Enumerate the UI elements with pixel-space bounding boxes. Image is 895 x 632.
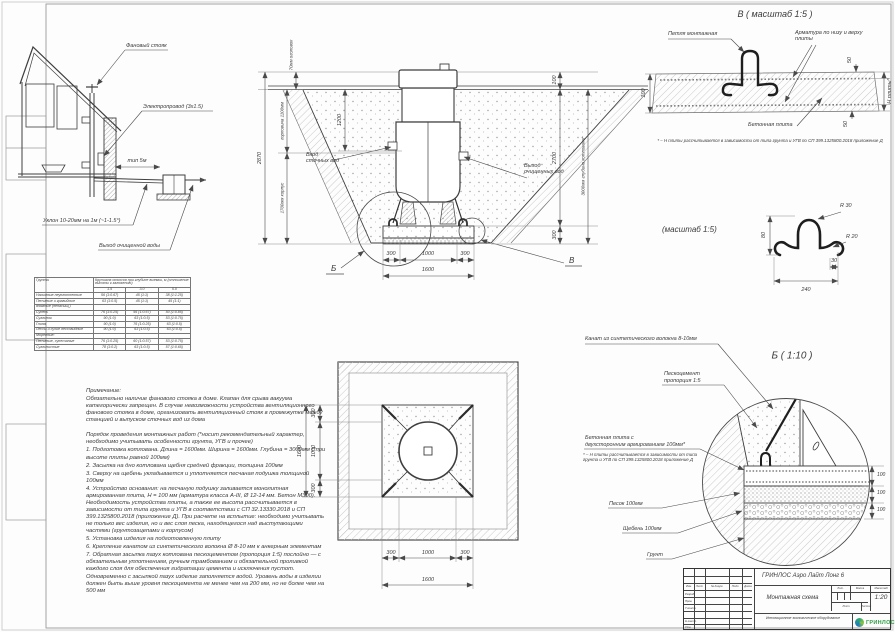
- detail-mark-v: В: [569, 256, 574, 265]
- tb-tagline: Инновационное экологическое оборудование: [755, 616, 851, 620]
- detail-v-rebar-label: Арматура по низу и верху плиты: [795, 30, 870, 43]
- dim-pit-depth: 3000мм глубина котлована*: [580, 136, 585, 195]
- tb-col-izm: Изм.: [684, 584, 694, 588]
- plan-dim-300-b2: 300: [460, 550, 469, 556]
- detail-b-d100-slab: 100: [877, 473, 885, 479]
- detail-v-slab-label: Бетонная плита: [748, 122, 793, 128]
- house-dist-label: тип 5м: [127, 158, 146, 164]
- detail-b-sc1: Пескоцемент: [664, 371, 700, 377]
- tb-row-approved: Утв.: [685, 625, 691, 629]
- detail-b-sand-label: Песок 100мм: [609, 501, 643, 507]
- notes-item: 3. Сверху на щебень укладывается и уплот…: [86, 471, 326, 485]
- plan-dim-300-b1: 300: [386, 550, 395, 556]
- detail-b-d100-gravel: 100: [877, 508, 885, 514]
- detail-b-slab1: Бетонная плита с: [585, 435, 634, 441]
- detail-v-loop-label: Петля монтажная: [668, 31, 717, 37]
- plan-dim-1000-b: 1000: [422, 550, 434, 556]
- house-slope-label: Уклон 10-20мм на 1м (~1-1.5°): [43, 218, 120, 224]
- tb-col-sign: Подп.: [729, 584, 742, 588]
- dim-neck: горловина 1100мм: [279, 102, 284, 140]
- notes-item: 5. Установка изделия на подготовленную п…: [86, 536, 326, 543]
- grinlos-logo-icon: [855, 618, 864, 627]
- drawing-sheet: Фановый стояк Электропровод (3х1.5) тип …: [0, 0, 895, 632]
- house-wire-label: Электропровод (3х1.5): [143, 104, 203, 110]
- dim-inlet-depth: 1200: [337, 114, 343, 126]
- detail-v-dim-h: Н плиты*: [887, 78, 893, 103]
- dim-300-br: 300: [460, 251, 469, 257]
- notes-title: Примечание:: [86, 388, 326, 395]
- tb-row-ncontrol: Н.контр.: [685, 619, 697, 623]
- tb-row-checked: Пров.: [685, 599, 692, 603]
- tb-sheets-header: Листов: [861, 604, 870, 608]
- tb-scale-header: Масштаб: [870, 586, 892, 590]
- brand-name: ГРИНЛОС: [866, 620, 895, 626]
- tb-col-doc: № докум.: [705, 584, 729, 588]
- notes-item: 4. Устройство основания: на песчаную под…: [86, 486, 326, 535]
- detail-b-soil-label: Грунт: [647, 552, 663, 558]
- notes-item: 7. Обратная засыпка пазух котлована песк…: [86, 552, 326, 594]
- detail-b-rope-label: Канат из синтетического волокна 8-10мм: [585, 336, 697, 342]
- detail-b-slab2: двухсторонним армированием 100мм*: [585, 442, 685, 448]
- table-row: Суглинистые78 (1:0.2)63 (1:0.5)57 (1:0.6…: [35, 345, 191, 351]
- hook-d30: 30: [831, 258, 837, 264]
- hook-d80: 80: [761, 232, 767, 238]
- soil-main-header: Крутизна откосов при глубине выемки, м (…: [94, 278, 191, 288]
- tb-mass-header: Масса: [850, 586, 870, 590]
- plan-dim-1600-b: 1600: [422, 577, 434, 583]
- detail-b-title: Б ( 1:10 ): [772, 350, 813, 362]
- detail-b-sc2: пропорция 1:5: [664, 378, 701, 384]
- section-view: [258, 64, 649, 280]
- notes-item: 1. Подготовка котлована. Длина = 1600мм.…: [86, 447, 326, 461]
- dim-1600-b: 1600: [422, 267, 434, 273]
- dim-1000-b: 1000: [422, 251, 434, 257]
- detail-v-title: В ( масштаб 1:5 ): [737, 9, 812, 19]
- tb-col-list: Лист: [694, 584, 705, 588]
- detail-v-drawing: [645, 39, 890, 126]
- tb-col-date: Дата: [742, 584, 754, 588]
- dim-300-bl: 300: [386, 251, 395, 257]
- detail-v-dim-100: 100: [641, 88, 647, 97]
- soil-slope-table: Грунты Крутизна откосов при глубине выем…: [34, 277, 191, 351]
- detail-b-gravel-label: Щебень 100мм: [623, 526, 662, 532]
- detail-b-note: * – Н плиты рассчитывается в зависимости…: [583, 452, 708, 462]
- brand-logo: ГРИНЛОС: [855, 618, 895, 627]
- detail-v-dim-50-top: 50: [847, 57, 853, 63]
- detail-v-dim-50-bot: 50: [843, 121, 849, 127]
- tb-lit-header: Лит.: [831, 586, 850, 590]
- house-stack-label: Фановый стояк: [126, 43, 167, 49]
- tb-doc-name: Монтажная схема: [754, 595, 831, 601]
- dim-300-right: 300: [552, 230, 558, 239]
- tb-doc-designation: ГРИНЛОС Аэро Лайт Лонг 6: [762, 573, 844, 579]
- notes-paragraph: Обязательно наличие фанового стояка в до…: [86, 396, 326, 424]
- tb-scale-value: 1:20: [870, 594, 892, 601]
- dim-cap: 70мм оголовок: [288, 40, 293, 71]
- title-block: Изм. Лист № докум. Подп. Дата Разраб. Пр…: [683, 568, 891, 630]
- notes-order-heading: Порядок проведения монтажных работ (*нос…: [86, 432, 326, 446]
- section-outlet-label: Выход очищенных вод: [524, 163, 564, 176]
- house-outlet-label: Выход очищенной воды: [99, 243, 160, 249]
- hook-title: (масштаб 1:5): [662, 225, 717, 234]
- notes-item: 6. Крепление канатом из синтетического в…: [86, 544, 326, 551]
- plan-view: [302, 362, 518, 589]
- tb-sheet-header: Лист: [831, 604, 861, 608]
- dim-body: 1700мм корпус: [279, 183, 284, 214]
- notes-item: 2. Засыпка на дно котлована щебня средне…: [86, 463, 326, 470]
- detail-mark-b: Б: [331, 264, 336, 273]
- hook-r20: R 20: [846, 234, 858, 240]
- section-inlet-label: Вход сточных вод: [306, 152, 342, 165]
- tb-row-developed: Разраб.: [685, 592, 695, 596]
- detail-v-note: * – Н плиты рассчитывается в зависимости…: [655, 138, 885, 143]
- dim-total-height: 2870: [257, 152, 263, 164]
- installation-notes: Примечание: Обязательно наличие фанового…: [86, 388, 326, 596]
- hook-r30: R 30: [840, 203, 852, 209]
- detail-b-d100-sand: 100: [877, 491, 885, 497]
- tb-row-tcontrol: Т.контр.: [685, 606, 696, 610]
- soil-col-header: Грунты: [35, 278, 94, 293]
- hook-d240: 240: [801, 287, 810, 293]
- dim-top-100: 100: [552, 75, 558, 84]
- hook-profile-drawing: [766, 212, 846, 285]
